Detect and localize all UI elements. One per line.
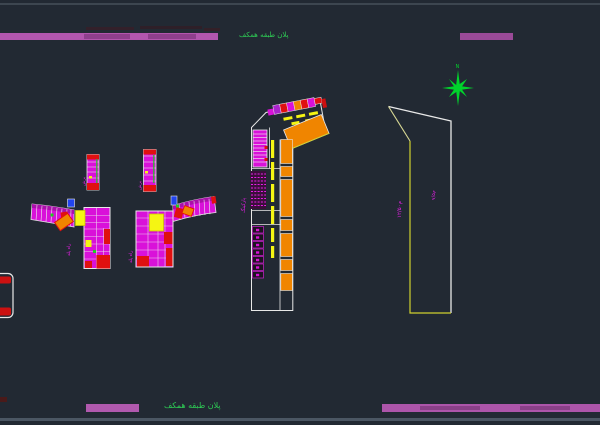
storage-cells bbox=[253, 227, 264, 279]
core-strip-a[interactable]: برش bbox=[82, 155, 99, 191]
north-label: N bbox=[456, 64, 460, 70]
stair-block bbox=[253, 130, 268, 167]
strip-b-label[interactable]: برش bbox=[138, 181, 143, 190]
hatched-area bbox=[251, 171, 267, 209]
core-strip-b[interactable]: برش bbox=[138, 150, 156, 192]
parking-label[interactable]: پارکینگ bbox=[240, 197, 247, 213]
tower-a-label[interactable]: راه پله bbox=[67, 244, 72, 256]
drawing-layer: N ۱۲/۵۰م ۷/۵م bbox=[0, 0, 600, 425]
lane-dashes bbox=[271, 140, 274, 258]
north-arrow-icon[interactable]: N bbox=[442, 64, 474, 106]
tower-plan-a[interactable]: راه پله bbox=[31, 199, 110, 269]
edge-detail-plan[interactable] bbox=[0, 274, 13, 403]
site-boundary-outline[interactable]: ۱۲/۵۰م ۷/۵م bbox=[389, 107, 452, 314]
parking-block-plan[interactable]: پارکینگ bbox=[240, 95, 334, 310]
tower-plan-b[interactable]: راه پله bbox=[129, 196, 216, 267]
tower-b-label[interactable]: راه پله bbox=[129, 251, 134, 263]
parking-stalls bbox=[281, 140, 293, 291]
parking-entry-wing bbox=[267, 95, 334, 151]
strip-a-label[interactable]: برش bbox=[82, 177, 87, 186]
site-dim-label[interactable]: ۷/۵م bbox=[431, 190, 437, 200]
cad-canvas: پلان طبقه همکف پلان طبقه همکف N ۱۲/۵۰م ۷… bbox=[0, 0, 600, 425]
site-dim-label[interactable]: ۱۲/۵۰م bbox=[397, 201, 403, 218]
